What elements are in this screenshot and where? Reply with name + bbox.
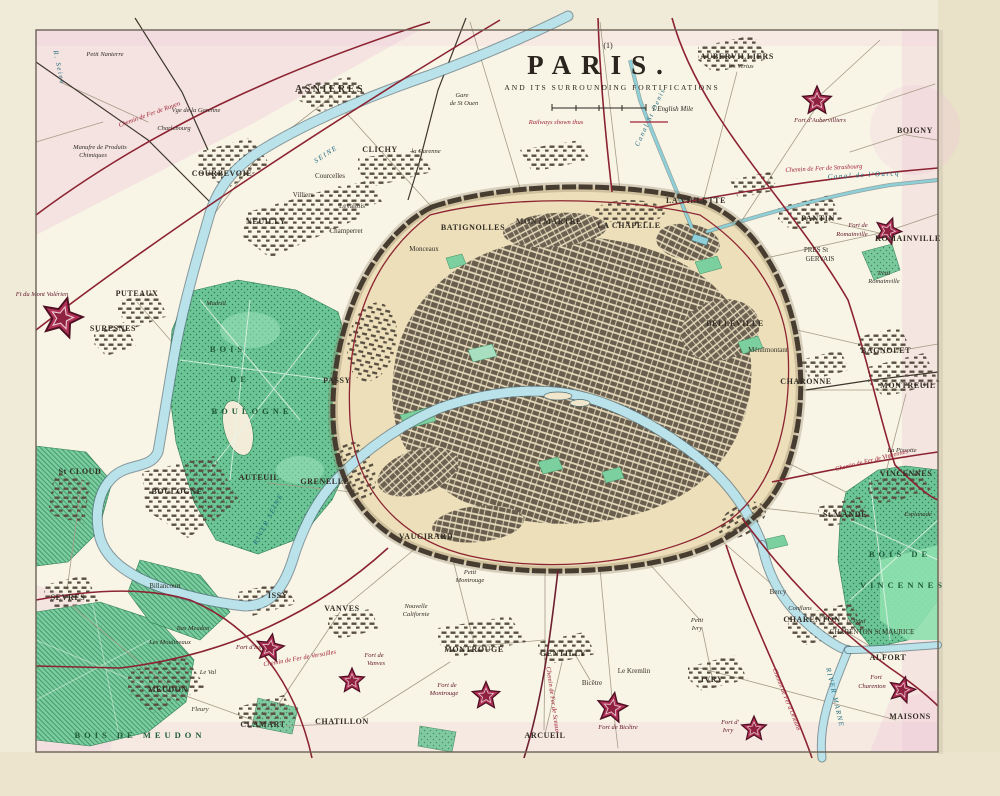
map-label: MONTMARTRE: [516, 217, 582, 226]
map-label: Charenton: [858, 683, 886, 690]
map-label: Fort d': [720, 719, 739, 726]
map-label: Petit: [690, 617, 703, 624]
map-label: MAISONS: [889, 712, 931, 721]
map-label: SEVRES: [51, 593, 86, 602]
map-label: AUBERVILLIERS: [700, 52, 774, 61]
map-label: BATIGNOLLES: [441, 223, 505, 232]
map-label: Fort de: [436, 682, 456, 689]
map-label: Ménilmontant: [748, 346, 788, 354]
map-label: VAUGIRARD: [399, 532, 453, 541]
map-label: Nouvelle: [403, 603, 427, 610]
map-label: Les Moulineaux: [148, 639, 191, 646]
map-scan: ASNIERESGarede St OuenCLICHYla GarenneCO…: [0, 0, 1000, 796]
map-label: IVRY: [701, 675, 724, 684]
map-label: Bicêtre: [582, 679, 602, 687]
map-label: Villiers: [293, 191, 314, 199]
map-label: Petit Nanterre: [85, 51, 123, 58]
map-label: ASNIERES: [295, 84, 365, 95]
map-label: Courcelles: [315, 172, 345, 180]
map-label: Bercy: [770, 588, 787, 596]
map-label: Fort d'Aubervilliers: [793, 117, 846, 124]
map-label: DE: [230, 374, 250, 384]
map-label: Fort de Bicêtre: [597, 724, 638, 731]
ile-de-la-cite: [544, 392, 572, 400]
paris-map: ASNIERESGarede St OuenCLICHYla GarenneCO…: [0, 0, 1000, 796]
map-label: Ivry: [722, 727, 734, 734]
map-label: Romainville: [835, 231, 868, 238]
map-label: Bas Meudon: [177, 625, 210, 632]
map-label: Gare: [455, 92, 468, 99]
map-label: Fort de: [847, 222, 867, 229]
map-label: Montrouge: [455, 577, 485, 584]
map-label: ALFORT: [870, 653, 907, 662]
map-label: Charlebourg: [157, 125, 191, 132]
scale-note: 1 English Mile: [652, 105, 693, 113]
plate-number: (1): [603, 41, 613, 50]
map-label: Esplanade: [903, 511, 932, 518]
map-label: Vanves: [367, 660, 386, 667]
map-label: VANVES: [324, 604, 359, 613]
map-label: VINCENNES: [860, 580, 946, 590]
map-label: PRES St: [804, 246, 828, 254]
map-label: BOIS: [210, 344, 246, 354]
map-label: Conflans: [788, 605, 812, 612]
map-label: BOIS DE: [869, 549, 931, 559]
map-label: Manufre de Produits: [72, 144, 127, 151]
map-label: le Pont: [847, 618, 866, 625]
map-label: LA VILLETTE: [666, 196, 726, 205]
ile-st-louis: [570, 400, 590, 407]
map-label: VINCENNES: [880, 469, 933, 478]
map-label: CLAMART: [240, 720, 285, 729]
map-label: de St Ouen: [450, 100, 479, 107]
map-label: Fort: [869, 674, 882, 681]
map-label: Petit: [463, 569, 476, 576]
map-label: Billancourt: [149, 582, 181, 590]
map-label: BOULOGNE: [151, 487, 202, 496]
map-label: Californie: [403, 611, 430, 618]
map-label: MONTREUIL: [880, 381, 936, 390]
map-label: Monceaux: [409, 245, 439, 253]
map-label: MONTROUGE: [444, 645, 504, 654]
map-label: Fleury: [190, 706, 208, 713]
map-label: PANTIN: [801, 214, 835, 223]
map-label: MEUDON: [148, 685, 188, 694]
map-label: Chimiques: [79, 152, 107, 159]
map-title: PARIS.: [527, 50, 673, 80]
map-label: BOIS DE MEUDON: [74, 730, 205, 740]
map-label: CHARENTON St MAURICE: [830, 628, 915, 636]
map-label: Le Val: [199, 669, 217, 676]
map-label: BOULOGNE: [211, 406, 292, 416]
map-label: St MANDE: [823, 510, 867, 519]
map-label: les Vertus: [728, 63, 754, 70]
map-label: LA CHAPELLE: [597, 221, 660, 230]
map-subtitle: AND ITS SURROUNDING FORTIFICATIONS: [504, 83, 719, 92]
map-label: St CLOUD: [59, 467, 102, 476]
map-label: Le Kremlin: [618, 667, 651, 675]
map-label: AUTEUIL: [239, 473, 280, 482]
map-label: Petit: [877, 270, 890, 277]
railway-note: Railways shown thus: [528, 119, 584, 126]
map-label: Romainville: [867, 278, 900, 285]
map-label: BELLEVILLE: [706, 319, 764, 328]
map-label: GRENELLE: [300, 477, 349, 486]
map-label: Madrid: [205, 300, 226, 307]
map-label: la Garenne: [411, 148, 440, 155]
map-label: NEUILLY: [246, 217, 286, 226]
map-label: COURBEVOIE: [192, 169, 253, 178]
map-label: Fort d'Issy: [235, 644, 264, 651]
map-label: PASSY: [323, 376, 351, 385]
map-label: SURESNES: [90, 324, 136, 333]
map-label: Montrouge: [429, 690, 459, 697]
map-label: GENTILLY: [540, 649, 586, 658]
map-label: ROMAINVILLE: [875, 234, 941, 243]
map-label: GERVAIS: [806, 255, 835, 263]
map-label: BOIGNY: [897, 126, 933, 135]
map-label: Fort de: [363, 652, 383, 659]
map-label: Vge de la Garenne: [172, 107, 221, 114]
map-label: CHATILLON: [315, 717, 369, 726]
map-label: ISSY: [268, 591, 288, 600]
map-label: BAGNOLET: [861, 346, 911, 355]
map-label: PUTEAUX: [116, 289, 159, 298]
map-label: Champerret: [329, 227, 362, 235]
map-label: Levallois: [339, 202, 365, 210]
map-label: Ivry: [691, 625, 703, 632]
map-label: CLICHY: [362, 145, 398, 154]
map-label: CHARENTON: [783, 615, 840, 624]
map-label: Ft du Mont Valérien: [15, 291, 69, 298]
map-label: CHARONNE: [780, 377, 831, 386]
